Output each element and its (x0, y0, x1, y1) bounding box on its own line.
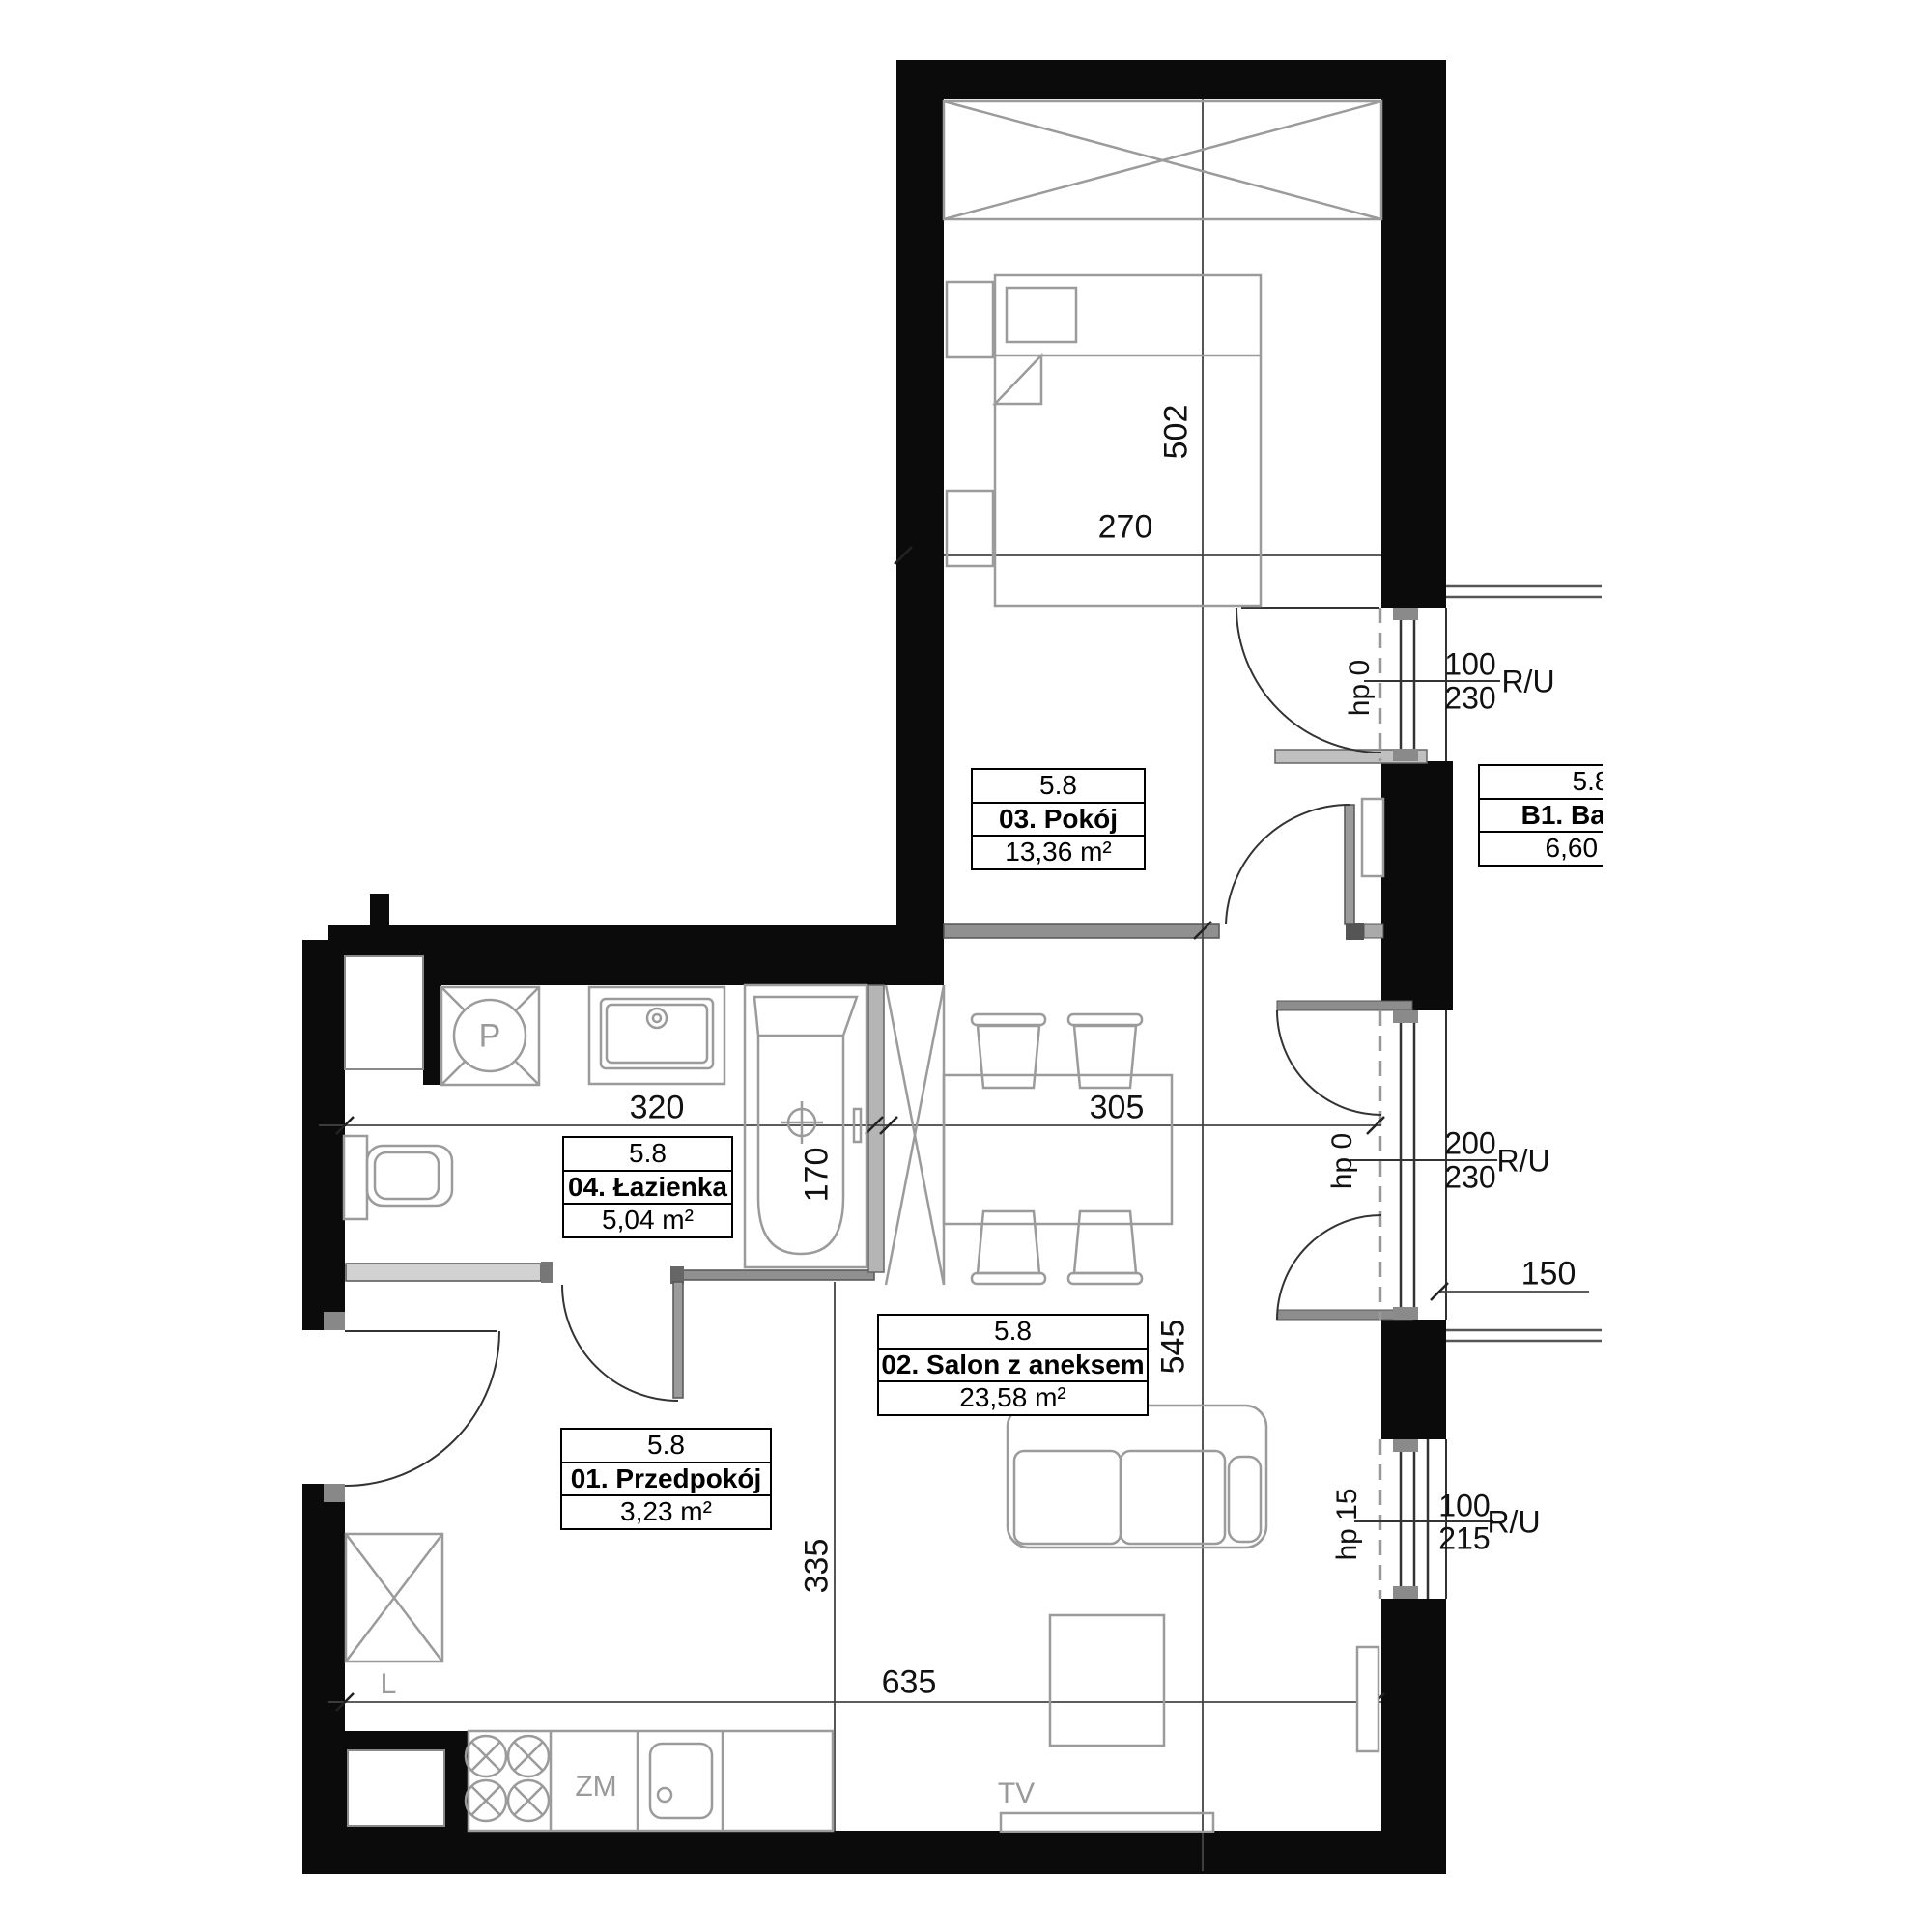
sofa (1008, 1406, 1266, 1548)
walls (302, 60, 1453, 1874)
dim-bath-width: 320 (630, 1090, 685, 1127)
partition-bedroom-salon (944, 924, 1219, 938)
dim-bedroom-width: 270 (1098, 509, 1153, 547)
window3-width: 100 (1438, 1489, 1490, 1524)
window2-code: R/U (1496, 1144, 1549, 1179)
fridge-letter: L (381, 1668, 397, 1701)
dim-salon-height: 545 (1155, 1320, 1193, 1375)
bath-sliding-panel (346, 1264, 541, 1281)
coffee-table (1050, 1615, 1164, 1746)
dim-tub-length: 170 (799, 1148, 837, 1203)
window3-height: 215 (1438, 1521, 1490, 1557)
room-label-balkon: 5.8 B1. Balkon 6,60 m² (1478, 764, 1603, 867)
window3-sill-label: hp 15 (1331, 1488, 1364, 1560)
bathroom-sink (589, 987, 724, 1084)
niche-bath (345, 956, 423, 1069)
window3-code: R/U (1487, 1505, 1540, 1541)
window2-sill-label: hp 0 (1326, 1133, 1359, 1189)
room-area: 6,60 m² (1480, 833, 1603, 865)
bedroom-wardrobe (944, 101, 1381, 219)
window-french (1380, 1010, 1446, 1320)
tv-letter: TV (998, 1777, 1035, 1810)
floor-plan-drawing (0, 0, 1932, 1932)
hall-wardrobe (346, 1534, 442, 1662)
room-unit: 5.8 (879, 1316, 1147, 1350)
window1-code: R/U (1501, 665, 1554, 700)
door-hinge-block-light (1364, 924, 1383, 938)
dim-total-width: 635 (882, 1664, 937, 1702)
room-name: 01. Przedpokój (562, 1463, 770, 1497)
room-unit: 5.8 (1480, 766, 1603, 800)
room-area: 5,04 m² (564, 1205, 731, 1236)
room-name: B1. Balkon (1480, 800, 1603, 834)
door-entrance (345, 1331, 499, 1486)
room-name: 04. Łazienka (564, 1172, 731, 1206)
room-unit: 5.8 (564, 1138, 731, 1172)
room-label-lazienka: 5.8 04. Łazienka 5,04 m² (562, 1136, 733, 1238)
room-name: 02. Salon z aneksem (879, 1350, 1147, 1383)
wall-bedroom-left (896, 60, 944, 985)
window-small (1380, 1439, 1446, 1599)
french-door-stub-bottom (1277, 1310, 1412, 1320)
room-area: 13,36 m² (973, 837, 1144, 868)
dim-bedroom-height: 502 (1158, 405, 1196, 460)
wall-right-a (1381, 60, 1446, 608)
room-name: 03. Pokój (973, 804, 1144, 838)
nightstand-top (947, 282, 993, 357)
room-label-pokoj: 5.8 03. Pokój 13,36 m² (971, 768, 1146, 870)
door-bathroom (562, 1282, 683, 1401)
room-unit: 5.8 (973, 770, 1144, 804)
toilet (344, 1136, 452, 1219)
wall-bottom (302, 1831, 1446, 1874)
entrance-jamb-bottom (324, 1484, 345, 1502)
window-balcony-door (1380, 608, 1446, 761)
tv-stand (1001, 1813, 1213, 1832)
window2-height: 230 (1444, 1160, 1495, 1196)
wall-left-a (302, 940, 345, 1330)
room-label-salon: 5.8 02. Salon z aneksem 23,58 m² (877, 1314, 1149, 1416)
dim-salon-width: 305 (1090, 1090, 1145, 1127)
room-area: 23,58 m² (879, 1382, 1147, 1414)
room-label-przedpokoj: 5.8 01. Przedpokój 3,23 m² (560, 1428, 772, 1530)
floor-plan-canvas: 5.8 03. Pokój 13,36 m² 5.8 04. Łazienka … (0, 0, 1932, 1932)
washer-letter: P (479, 1018, 501, 1056)
room-area: 3,23 m² (562, 1496, 770, 1528)
dining-chairs (972, 1014, 1142, 1284)
bathtub (745, 985, 867, 1267)
room-label-balkon-clip: 5.8 B1. Balkon 6,60 m² (1478, 764, 1603, 868)
niche-kitchen (348, 1750, 444, 1826)
dishwasher-letter: ZM (575, 1771, 616, 1804)
wall-right-c (1381, 1320, 1446, 1439)
dim-hall-height: 335 (799, 1539, 837, 1594)
french-door-stub-top (1277, 1001, 1412, 1010)
radiator-bedroom (1362, 799, 1383, 876)
bath-slide-cap (541, 1262, 553, 1283)
window2-width: 200 (1444, 1126, 1495, 1162)
door-bedroom (1226, 805, 1354, 924)
window1-height: 230 (1444, 681, 1495, 717)
wall-right-b (1381, 761, 1453, 1010)
window1-width: 100 (1444, 647, 1495, 683)
room-unit: 5.8 (562, 1430, 770, 1463)
window1-sill-label: hp 0 (1344, 660, 1377, 716)
entrance-jamb-top (324, 1312, 345, 1330)
partition-bath-bottom (680, 1270, 874, 1280)
shaft-x (886, 985, 944, 1285)
radiator-salon (1357, 1647, 1378, 1751)
wall-top (896, 60, 1446, 99)
wall-bath-notch (370, 894, 389, 925)
dim-balcony-depth: 150 (1521, 1256, 1577, 1293)
wall-bath-pier (423, 985, 441, 1085)
